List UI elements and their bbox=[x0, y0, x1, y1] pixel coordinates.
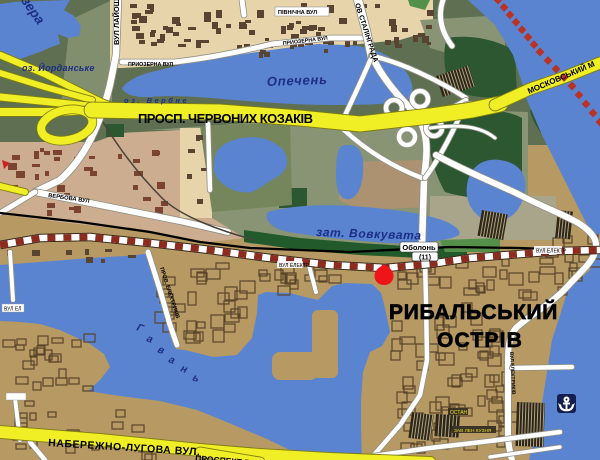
svg-text:ОСТРІВ: ОСТРІВ bbox=[437, 329, 523, 352]
svg-text:Оболонь: Оболонь bbox=[402, 243, 436, 252]
svg-text:ЗАВ ЛЕН КУЗНЯ: ЗАВ ЛЕН КУЗНЯ bbox=[454, 428, 492, 434]
svg-text:РИБАЛЬСЬКИЙ: РИБАЛЬСЬКИЙ bbox=[389, 300, 558, 324]
svg-text:оз. Вербне: оз. Вербне bbox=[124, 96, 189, 105]
svg-text:ВУЛ ЕЛЕКТР: ВУЛ ЕЛЕКТР bbox=[536, 249, 567, 255]
svg-text:ВУЛ ЛАЙОША: ВУЛ ЛАЙОША bbox=[112, 0, 121, 45]
svg-text:ПРИОЗЕРНА ВУЛ: ПРИОЗЕРНА ВУЛ bbox=[128, 62, 173, 68]
svg-text:Опечень: Опечень bbox=[267, 72, 327, 89]
svg-text:ПРОСП. ЧЕРВОНИХ КОЗАКІВ: ПРОСП. ЧЕРВОНИХ КОЗАКІВ bbox=[138, 111, 313, 126]
svg-text:ВУЛ ЕЛ: ВУЛ ЕЛ bbox=[4, 307, 21, 313]
svg-text:(11): (11) bbox=[419, 255, 431, 262]
svg-text:ОСТАН: ОСТАН bbox=[450, 410, 468, 416]
svg-text:ПІВНІЧНА ВУЛ: ПІВНІЧНА ВУЛ bbox=[278, 10, 317, 16]
svg-text:оз. Йорданське: оз. Йорданське bbox=[22, 62, 95, 73]
svg-text:ВУЛ ЕЛЕКТР: ВУЛ ЕЛЕКТР bbox=[279, 263, 310, 269]
